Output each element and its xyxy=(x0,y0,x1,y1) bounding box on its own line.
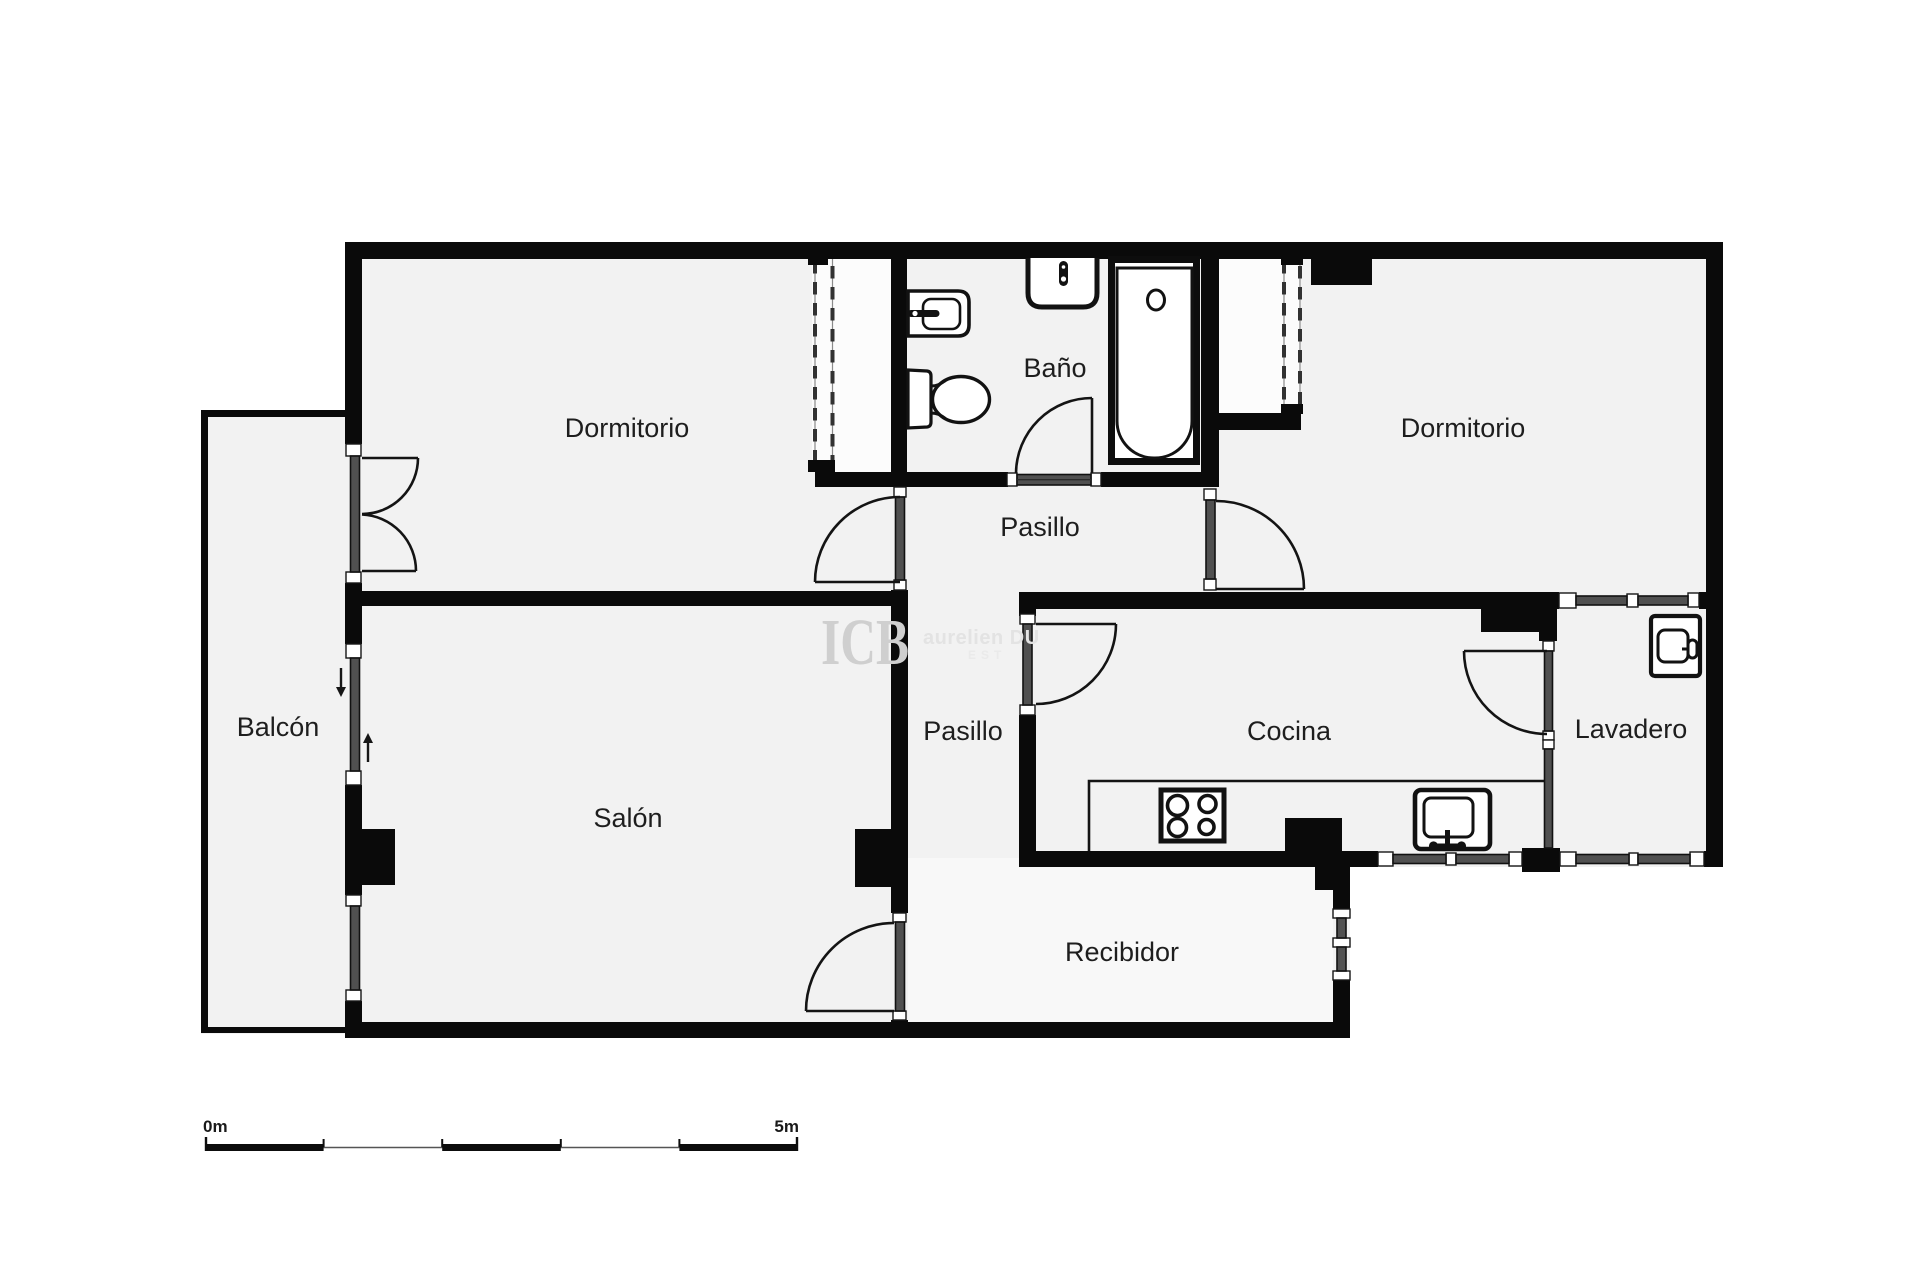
svg-text:Lavadero: Lavadero xyxy=(1575,714,1688,744)
svg-text:Salón: Salón xyxy=(593,803,662,833)
svg-text:Balcón: Balcón xyxy=(237,712,320,742)
svg-text:5m: 5m xyxy=(774,1117,799,1136)
svg-text:EST: EST xyxy=(968,648,1006,662)
svg-text:Cocina: Cocina xyxy=(1247,716,1332,746)
svg-text:Pasillo: Pasillo xyxy=(1000,512,1080,542)
svg-text:Dormitorio: Dormitorio xyxy=(1401,413,1526,443)
svg-text:Baño: Baño xyxy=(1023,353,1086,383)
svg-text:ICB: ICB xyxy=(821,606,909,679)
svg-text:aurelien DU: aurelien DU xyxy=(923,627,1040,649)
svg-text:0m: 0m xyxy=(203,1117,228,1136)
svg-text:Pasillo: Pasillo xyxy=(923,716,1003,746)
svg-text:Dormitorio: Dormitorio xyxy=(565,413,690,443)
svg-text:Recibidor: Recibidor xyxy=(1065,937,1179,967)
